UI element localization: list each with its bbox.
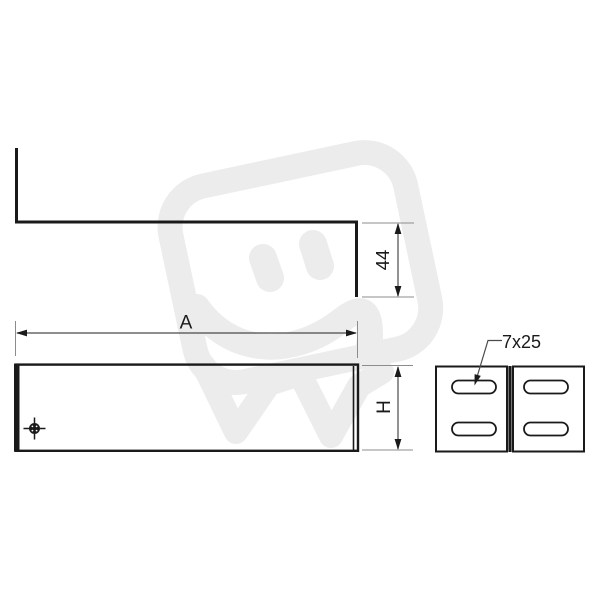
arrowhead-left-icon bbox=[16, 330, 27, 337]
slot-hole bbox=[452, 423, 496, 436]
slot-hole bbox=[452, 381, 496, 394]
slot-hole bbox=[524, 423, 568, 436]
weld-spot-icon bbox=[24, 418, 46, 440]
arrowhead-up-icon bbox=[395, 223, 402, 234]
slot-size-label: 7x25 bbox=[502, 332, 541, 352]
front-view-left-fold bbox=[14, 364, 20, 451]
dim-a-label: A bbox=[180, 313, 193, 334]
arrowhead-down-icon bbox=[395, 286, 402, 297]
arrowhead-down-icon bbox=[395, 439, 402, 450]
end-plate-right bbox=[513, 367, 584, 452]
slot-hole bbox=[524, 381, 568, 394]
dim-44-label: 44 bbox=[372, 250, 393, 271]
dim-h-label: H bbox=[374, 400, 395, 414]
end-plate-left bbox=[436, 367, 507, 452]
technical-drawing: 44 A H bbox=[0, 0, 600, 600]
arrowhead-right-icon bbox=[346, 330, 357, 337]
watermark-smile-icon bbox=[197, 307, 370, 354]
side-view-end-plates bbox=[436, 366, 584, 452]
drawing-canvas: 44 A H bbox=[0, 0, 600, 600]
watermark-left-eye-icon bbox=[263, 258, 270, 278]
watermark-right-eye-icon bbox=[313, 244, 320, 266]
arrowhead-up-icon bbox=[395, 366, 402, 377]
